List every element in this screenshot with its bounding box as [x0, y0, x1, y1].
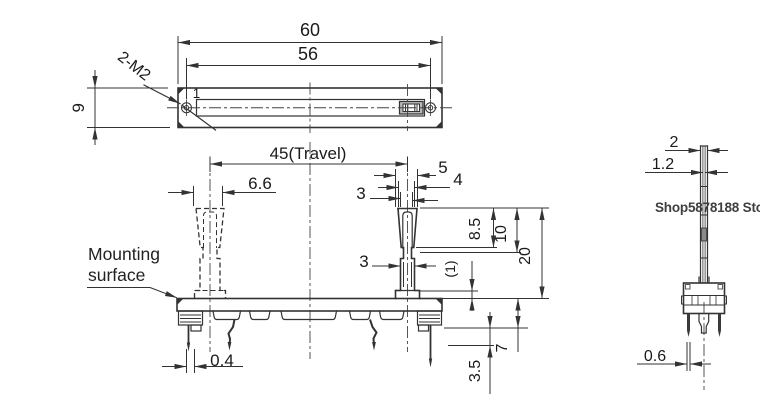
dim-lever-base-width: 6.6: [248, 174, 272, 193]
dim-top-hole-pitch: 56: [298, 44, 318, 64]
dim-clearance: (1): [442, 260, 458, 277]
front-left-bracket: [179, 311, 203, 352]
front-right-bracket: [418, 311, 442, 368]
front-view-body-bar: [177, 299, 442, 312]
dim-side-lever-thickness: 2: [670, 134, 679, 151]
dim-top-body-height: 9: [69, 103, 88, 112]
dim-top-overall-width: 60: [300, 20, 320, 40]
dim-h-10: 10: [493, 225, 510, 243]
dim-tip-4: 4: [453, 170, 462, 189]
mounting-surface-label-line2: surface: [88, 265, 145, 285]
technical-drawing-slide-potentiometer: 60 56 9 2-M2 1: [0, 0, 760, 403]
dim-travel: 45(Travel): [270, 144, 347, 163]
dim-side-inner-thickness: 1.2: [652, 156, 674, 173]
side-view: 2 1.2 0.6 Shop5878188 Store: [637, 134, 760, 390]
front-view: 45(Travel) 6.6 5 4 3 8.5: [87, 142, 549, 394]
dim-pin-tip: 3.5: [467, 360, 484, 382]
front-terminal-pins: [228, 320, 377, 351]
thread-note: 2-M2: [114, 49, 153, 85]
top-view: 60 56 9 2-M2 1: [69, 20, 452, 145]
dim-side-pin-thickness: 0.6: [644, 348, 666, 365]
dim-h-20: 20: [517, 247, 534, 265]
mounting-surface-label-line1: Mounting: [88, 244, 160, 264]
dim-stem-3: 3: [359, 252, 368, 271]
front-bottom-tabs: [213, 311, 404, 320]
dim-tip-5: 5: [438, 158, 447, 177]
dim-h-8-5: 8.5: [467, 218, 484, 240]
drawing-canvas: 60 56 9 2-M2 1: [0, 0, 760, 403]
dim-pin-length: 7: [494, 343, 511, 352]
dim-pin-thickness: 0.4: [210, 351, 234, 370]
slot-note: 1: [193, 86, 201, 101]
store-watermark: Shop5878188 Store: [655, 200, 760, 215]
dim-tip-3: 3: [356, 184, 365, 203]
